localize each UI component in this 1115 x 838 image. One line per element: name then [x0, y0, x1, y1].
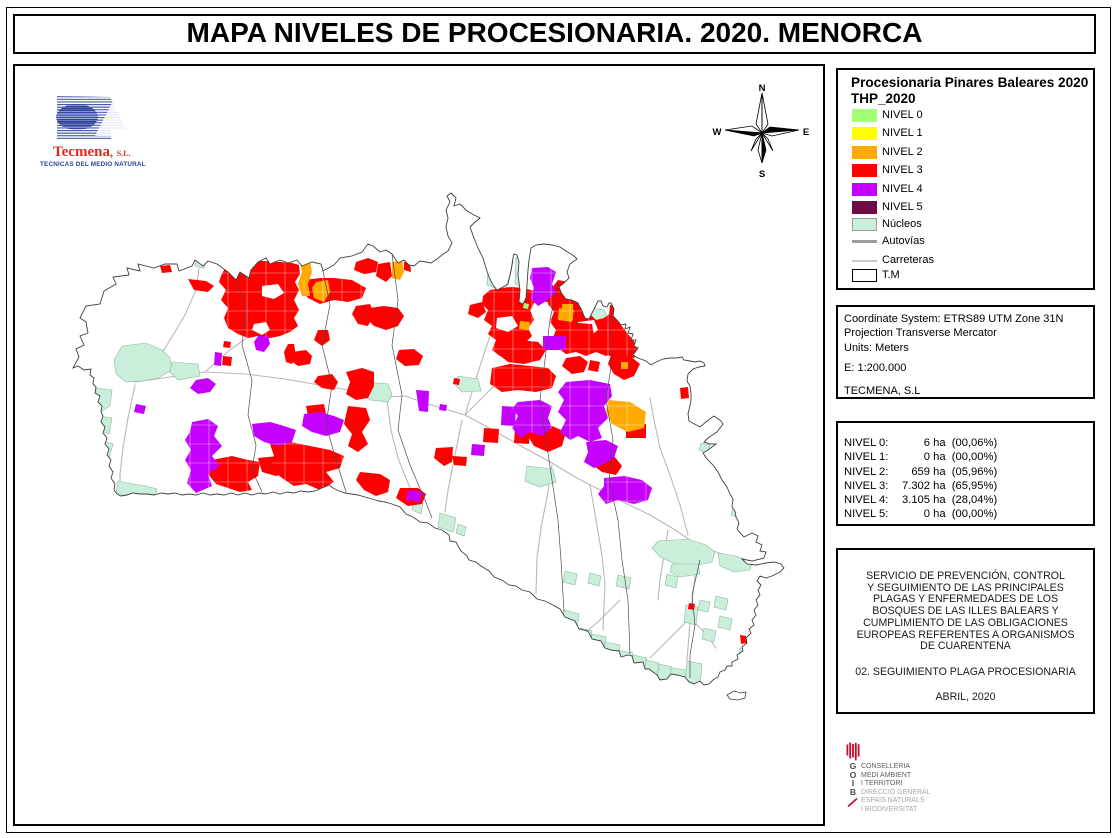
svg-text:E: E — [803, 127, 809, 138]
svg-text:S: S — [759, 169, 765, 180]
svg-text:Tecmena, S.L.: Tecmena, S.L. — [53, 144, 131, 160]
svg-text:N: N — [759, 83, 766, 94]
svg-text:W: W — [713, 127, 722, 138]
svg-text:TECNICAS DEL MEDIO NATURAL: TECNICAS DEL MEDIO NATURAL — [40, 161, 146, 168]
